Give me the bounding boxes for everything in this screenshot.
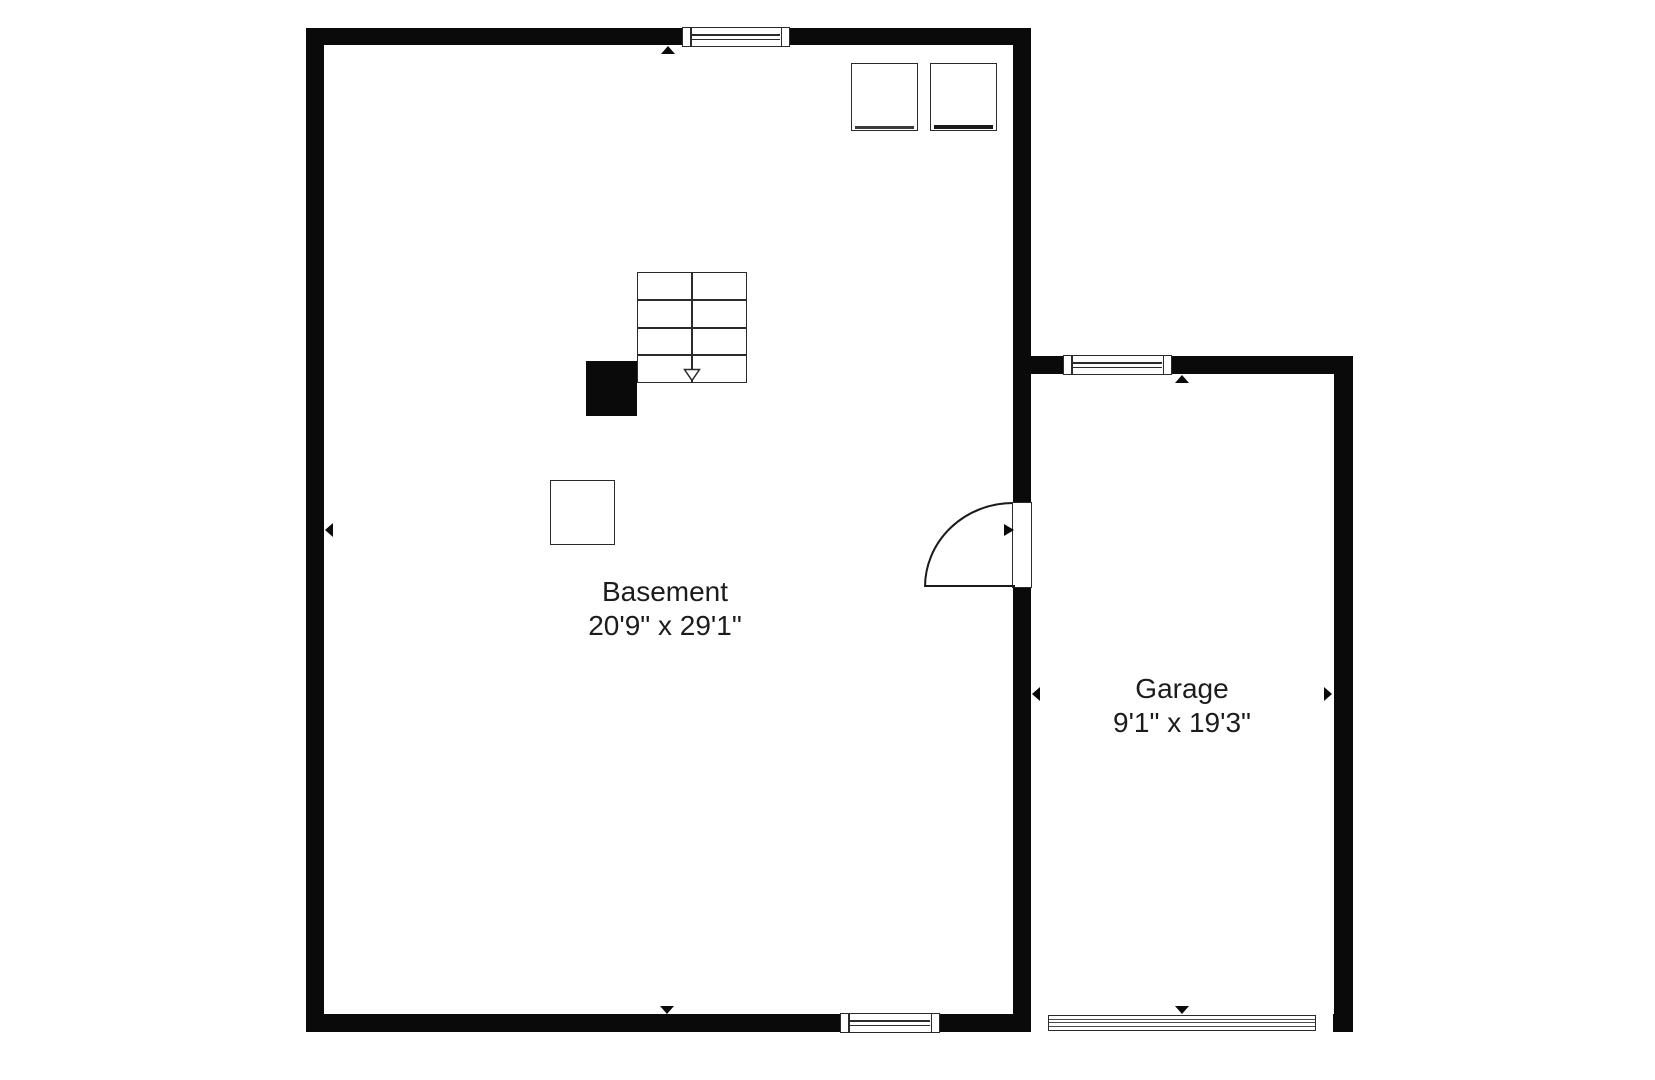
stairs-down-arrow-icon xyxy=(683,368,701,382)
staircase xyxy=(637,272,747,383)
window-pane-line xyxy=(850,1020,930,1022)
dimension-arrow-left-icon xyxy=(1032,687,1040,701)
window-pane-line xyxy=(1073,367,1162,369)
appliance-front-line xyxy=(934,125,993,129)
basement-label: Basement 20'9" x 29'1" xyxy=(588,575,742,643)
basement-bottom-window-icon xyxy=(840,1013,940,1033)
window-frame-line xyxy=(848,1014,850,1032)
garage-door-slat-line xyxy=(1049,1019,1315,1020)
fixture-box xyxy=(550,480,615,545)
room-name: Basement xyxy=(588,575,742,609)
garage-door-icon xyxy=(1048,1015,1316,1031)
chimney-block xyxy=(586,361,637,416)
basement-top-window-icon xyxy=(682,27,790,47)
door-swing-arc-icon xyxy=(920,495,1020,595)
garage-top-window-icon xyxy=(1063,355,1172,375)
door-direction-arrow-icon xyxy=(1004,524,1014,536)
garage-door-slat-line xyxy=(1049,1022,1315,1023)
appliance-front-line xyxy=(855,126,914,129)
window-pane-line xyxy=(692,39,780,41)
window-pane-line xyxy=(1073,362,1162,364)
window-pane-line xyxy=(692,34,780,36)
dimension-arrow-down-icon xyxy=(1175,1006,1189,1014)
window-frame-line xyxy=(781,28,783,46)
window-frame-line xyxy=(931,1014,933,1032)
dimension-arrow-right-icon xyxy=(1324,687,1332,701)
garage-label: Garage 9'1" x 19'3" xyxy=(1113,672,1251,740)
garage-right-wall xyxy=(1334,356,1353,1032)
appliance-icon xyxy=(851,63,918,131)
stair-divider-line xyxy=(691,273,693,382)
interior-door xyxy=(1012,502,1032,588)
floor-plan: Basement 20'9" x 29'1" Garage 9'1" x 19'… xyxy=(0,0,1655,1080)
basement-left-wall xyxy=(306,28,324,1032)
window-frame-line xyxy=(690,28,692,46)
dimension-arrow-up-icon xyxy=(1175,375,1189,383)
dimension-arrow-down-icon xyxy=(660,1006,674,1014)
door-leaf-line xyxy=(925,585,1015,587)
dimension-arrow-up-icon xyxy=(661,46,675,54)
garage-door-slat-line xyxy=(1049,1026,1315,1027)
appliance-icon xyxy=(930,63,997,131)
basement-top-wall xyxy=(306,28,1031,45)
window-frame-line xyxy=(1163,356,1165,374)
room-dimensions: 9'1" x 19'3" xyxy=(1113,706,1251,740)
window-pane-line xyxy=(850,1025,930,1027)
room-dimensions: 20'9" x 29'1" xyxy=(588,609,742,643)
window-frame-line xyxy=(1071,356,1073,374)
dimension-arrow-left-icon xyxy=(325,523,333,537)
room-name: Garage xyxy=(1113,672,1251,706)
